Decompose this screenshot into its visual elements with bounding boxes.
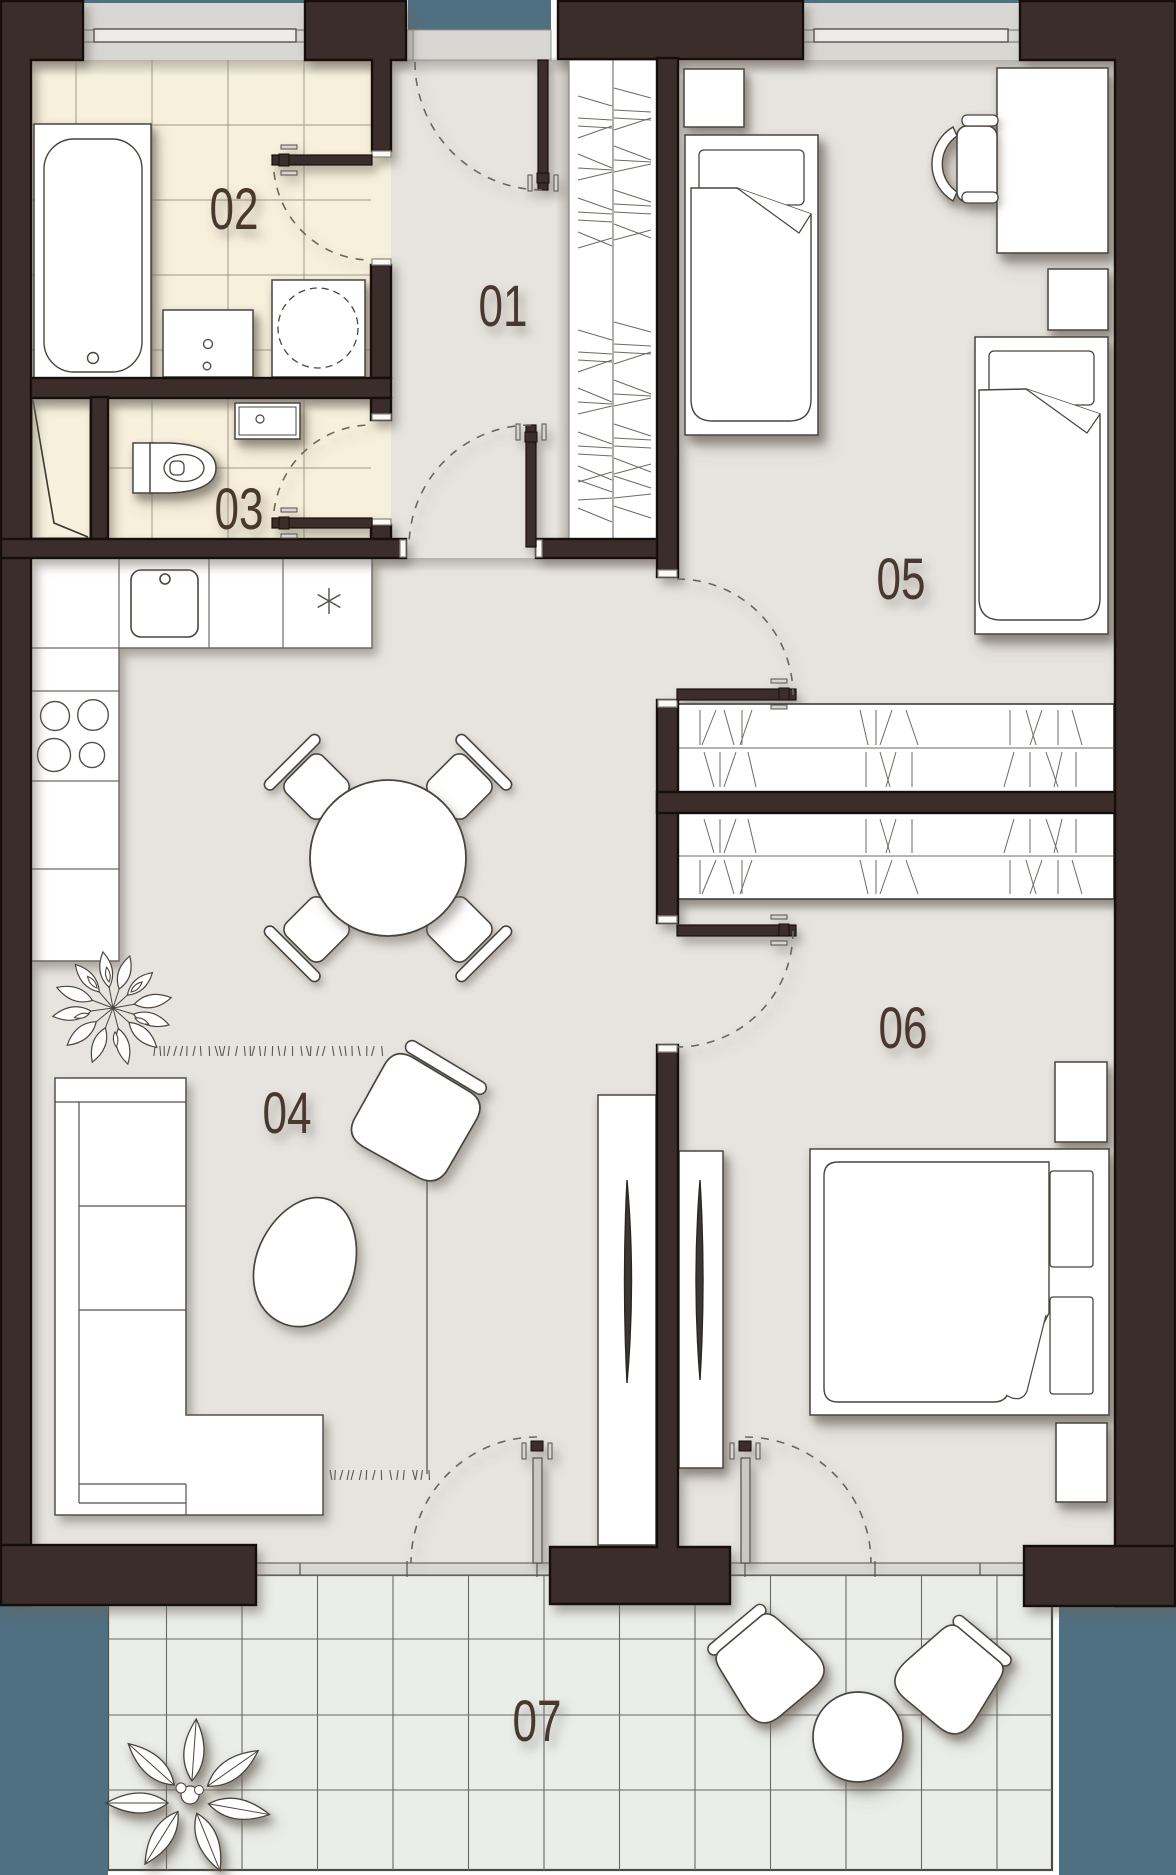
svg-text:04: 04 <box>262 1080 311 1145</box>
svg-text:07: 07 <box>512 1688 561 1753</box>
svg-text:06: 06 <box>878 995 927 1060</box>
svg-text:03: 03 <box>214 476 263 541</box>
svg-text:02: 02 <box>209 176 258 241</box>
svg-text:01: 01 <box>478 273 527 338</box>
svg-text:05: 05 <box>876 546 925 611</box>
